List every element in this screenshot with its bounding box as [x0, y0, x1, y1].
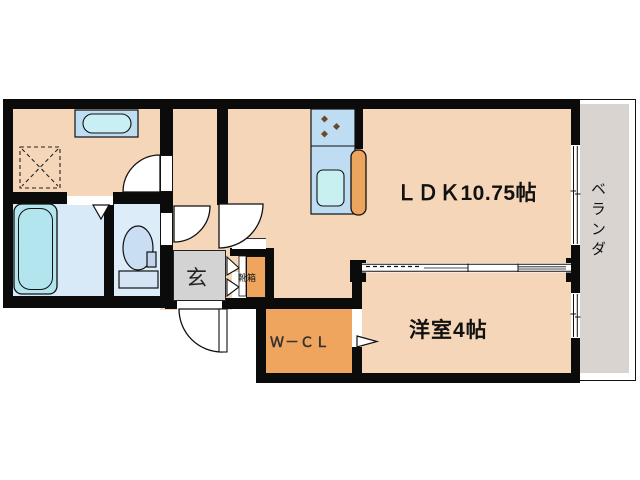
wall-bottom-right — [256, 373, 580, 383]
bathroom-floor — [10, 198, 110, 300]
shoebox-label: 靴箱 — [238, 271, 256, 284]
bedroom-label: 洋室4帖 — [409, 314, 488, 344]
wall-bedroom-left-2 — [352, 347, 362, 376]
wall-east-2 — [571, 245, 580, 293]
bathroom-door-opening — [67, 196, 113, 205]
window-bedroom — [571, 293, 580, 338]
toilet-floor — [108, 198, 164, 300]
veranda-label: ベランダ — [587, 181, 608, 261]
wall-bath-toilet — [104, 198, 114, 300]
entrance-door-arc — [179, 309, 222, 352]
wall-bottom-left — [3, 296, 169, 308]
window-ldk — [571, 145, 580, 245]
entrance-label: 玄 — [186, 262, 207, 292]
shoebox-niche — [232, 238, 266, 249]
closet-door-opening — [352, 309, 362, 347]
washroom-floor — [12, 104, 164, 198]
washroom-door-opening — [160, 155, 173, 192]
wall-bath-top-1 — [12, 192, 67, 204]
wall-east-3 — [571, 338, 580, 376]
wall-divider-stub-w — [350, 260, 366, 282]
wall-top — [3, 99, 580, 109]
wall-closet-left — [256, 300, 266, 383]
ldk-floor-lower — [264, 240, 362, 302]
ldk-label: ＬＤＫ10.75帖 — [396, 177, 537, 207]
wall-hall-left-1 — [160, 99, 173, 155]
toilet-door-opening — [160, 212, 173, 246]
wall-hall-right — [217, 99, 228, 205]
entrance-door-leaf — [219, 309, 227, 352]
closet-label: Ｗ－ＣＬ — [270, 332, 330, 352]
floor-plan: ＬＤＫ10.75帖 洋室4帖 Ｗ－ＣＬ 玄 靴箱 ベランダ — [0, 0, 640, 480]
wall-bath-top-2 — [113, 192, 164, 204]
wall-east-1 — [571, 99, 580, 145]
wall-kitchen-side — [353, 109, 363, 149]
